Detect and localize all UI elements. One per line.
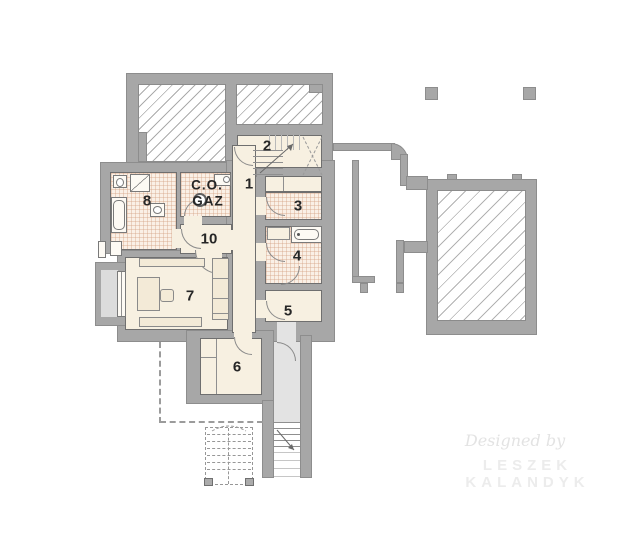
retaining-tab-top: [406, 176, 428, 190]
room-label-5: 5: [284, 303, 292, 320]
room-label-4: 4: [293, 248, 301, 265]
cabinet-divider-1: [213, 278, 228, 279]
door-opening-boiler: [184, 216, 202, 225]
shelf-top: [139, 258, 205, 267]
wall-notch-b: [309, 84, 323, 93]
washbasin-bowl-icon: [223, 176, 230, 183]
cabinet-divider-3: [213, 313, 228, 314]
door-opening-room5: [256, 300, 266, 318]
entry-stairs-dashed: [274, 452, 300, 478]
shower-icon: [130, 174, 150, 192]
toilet-mid-bowl-icon: [153, 206, 162, 214]
window-well-interior: [101, 270, 118, 317]
bathtub-inner-room8: [113, 200, 125, 230]
column-post-a: [425, 87, 438, 100]
boiler-room-label-line2: GAZ: [192, 194, 224, 209]
wall-passage-left: [262, 400, 274, 478]
room-6-closet-divider-v: [216, 339, 217, 394]
closet-room4: [267, 227, 290, 240]
watermark-name: LESZEK KALANDYK: [420, 457, 635, 491]
floor-plan: 1 2 3 4 5 6 7 8 10 C.O. GAZ Designed by …: [0, 0, 638, 556]
door-opening-room10: [227, 230, 233, 250]
boiler-room-label-line1: C.O.: [191, 178, 223, 193]
column-post-b: [523, 87, 536, 100]
retaining-wall-top: [333, 143, 395, 151]
upper-stairs-tread-4: [207, 455, 251, 456]
wall-passage-right: [300, 335, 312, 478]
room-label-1: 1: [245, 176, 253, 193]
cabinet-column: [212, 258, 229, 320]
upper-stairs-center-line: [228, 428, 229, 484]
room-6-floor: [200, 338, 262, 395]
retaining-foot: [352, 276, 375, 283]
room-label-7: 7: [186, 288, 194, 305]
upper-stairs-tread-6: [207, 469, 251, 470]
wall-notch-a: [138, 132, 147, 162]
door-opening-room3: [256, 197, 266, 215]
retaining-tab-mid: [404, 241, 428, 253]
shelf-bottom: [139, 317, 202, 327]
closet-strip: [265, 176, 322, 192]
overhang-dashed-h: [160, 421, 263, 423]
room-6-closet-divider-h: [201, 357, 216, 358]
overhang-dashed-v: [159, 342, 161, 423]
retaining-stub-b: [396, 283, 404, 293]
chair: [160, 289, 174, 302]
upper-stairs-tread-5: [207, 462, 251, 463]
upper-stairs-tread-2: [207, 441, 251, 442]
terrace-hatch: [437, 190, 526, 321]
entry-stairs-solid: [274, 422, 300, 452]
retaining-wall-left: [352, 160, 359, 282]
toilet-bowl-icon: [116, 178, 124, 187]
upper-stairs-outline: [205, 427, 253, 485]
wall-terrace-tab-a: [447, 174, 457, 180]
room-label-8: 8: [143, 193, 151, 210]
room-label-10: 10: [201, 231, 218, 248]
sink-icon: [110, 241, 122, 256]
closet-divider: [283, 177, 284, 191]
window-room7-line: [121, 272, 122, 316]
upper-stairs-tread-1: [207, 434, 251, 435]
retaining-stub-a: [360, 283, 368, 293]
wall-terrace-tab-b: [512, 174, 522, 180]
bathtub-drain-dot: [297, 233, 300, 236]
upper-stairs-tread-3: [207, 448, 251, 449]
retaining-wall-mid: [396, 240, 404, 283]
door-opening-room4: [256, 243, 266, 261]
stair-post-left: [204, 478, 213, 486]
room-label-6: 6: [233, 359, 241, 376]
door-opening-room8: [172, 229, 181, 248]
room-label-2: 2: [263, 138, 271, 155]
door-opening-passage: [277, 322, 296, 342]
stair-post-right: [245, 478, 254, 486]
watermark-script: Designed by: [435, 431, 595, 450]
unexcavated-area-left: [138, 84, 226, 162]
stairs-upper-flight: [269, 135, 302, 150]
cabinet-divider-2: [213, 298, 228, 299]
room-label-3: 3: [294, 198, 302, 215]
window-room8: [98, 241, 106, 258]
desk: [137, 277, 160, 311]
